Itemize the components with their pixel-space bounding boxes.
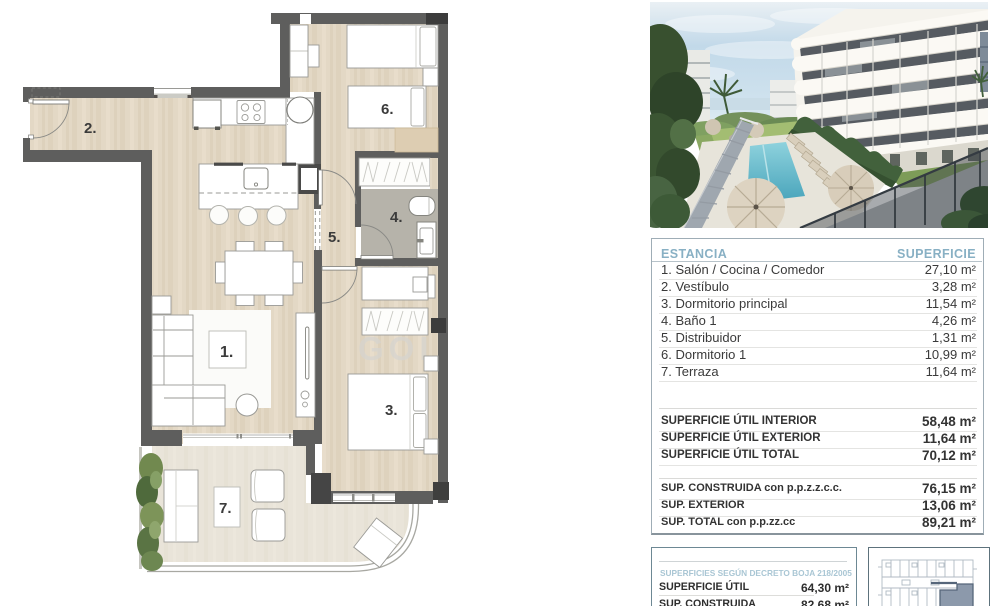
svg-text:6.: 6.: [381, 101, 394, 118]
svg-text:1.: 1.: [220, 344, 233, 361]
svg-text:4.: 4.: [390, 209, 403, 226]
svg-text:7.: 7.: [219, 500, 232, 517]
svg-text:5.: 5.: [328, 229, 341, 246]
svg-text:3.: 3.: [385, 402, 398, 419]
svg-text:2.: 2.: [84, 120, 97, 137]
